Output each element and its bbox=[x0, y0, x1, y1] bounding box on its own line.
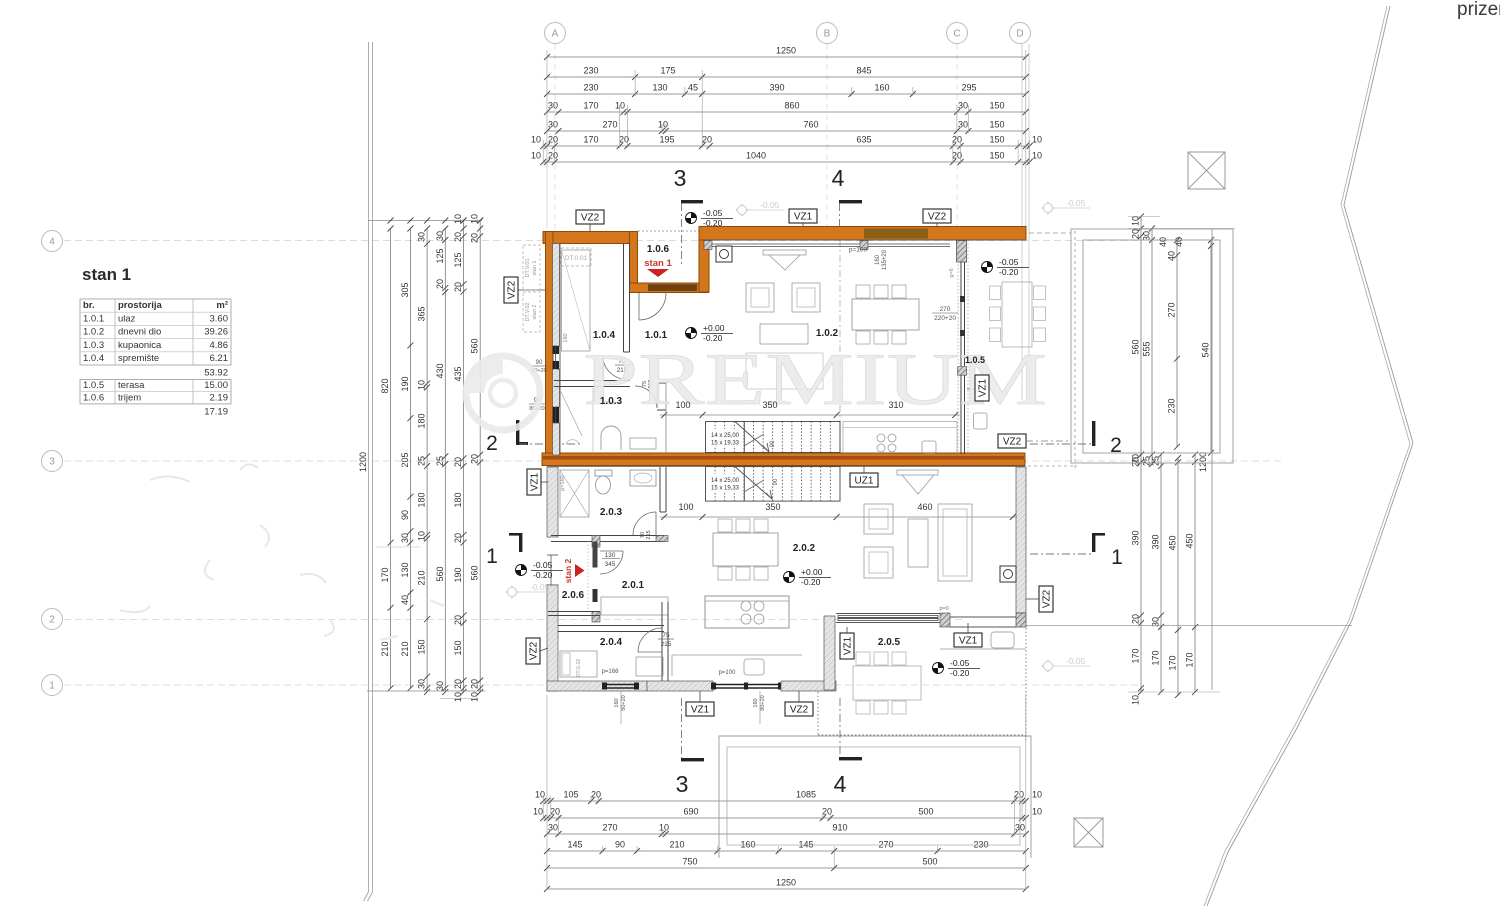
svg-text:270: 270 bbox=[602, 120, 617, 130]
svg-text:560: 560 bbox=[470, 565, 480, 580]
svg-text:150: 150 bbox=[989, 135, 1004, 145]
svg-text:30: 30 bbox=[958, 101, 968, 111]
svg-text:20: 20 bbox=[1014, 790, 1024, 800]
svg-text:450: 450 bbox=[1168, 535, 1178, 550]
svg-text:125: 125 bbox=[453, 252, 463, 267]
svg-text:130: 130 bbox=[652, 83, 667, 93]
svg-text:20: 20 bbox=[453, 615, 463, 625]
svg-text:p=160: p=160 bbox=[560, 475, 566, 490]
svg-text:20: 20 bbox=[548, 135, 558, 145]
svg-text:560: 560 bbox=[435, 566, 445, 581]
svg-text:390: 390 bbox=[1151, 534, 1161, 549]
svg-text:3: 3 bbox=[49, 457, 55, 468]
svg-text:220+20: 220+20 bbox=[934, 315, 956, 322]
svg-text:130: 130 bbox=[605, 552, 616, 559]
svg-text:190: 190 bbox=[400, 376, 410, 391]
svg-text:270: 270 bbox=[940, 306, 951, 313]
svg-text:1.0.1: 1.0.1 bbox=[645, 330, 668, 341]
svg-text:+0.00: +0.00 bbox=[703, 323, 725, 333]
svg-text:80+20: 80+20 bbox=[621, 695, 627, 710]
svg-text:500: 500 bbox=[922, 857, 937, 867]
svg-text:10: 10 bbox=[417, 380, 427, 390]
svg-text:-0.20: -0.20 bbox=[999, 267, 1019, 277]
svg-text:760: 760 bbox=[803, 120, 818, 130]
svg-text:350: 350 bbox=[762, 400, 777, 410]
svg-text:1200: 1200 bbox=[358, 452, 368, 472]
svg-text:DT.V.01: DT.V.01 bbox=[525, 258, 531, 277]
svg-text:30: 30 bbox=[1142, 231, 1152, 241]
svg-text:1.0.5: 1.0.5 bbox=[965, 355, 985, 365]
svg-text:4: 4 bbox=[49, 237, 55, 248]
svg-text:VZ1: VZ1 bbox=[691, 705, 710, 716]
svg-text:2.0.3: 2.0.3 bbox=[600, 507, 623, 518]
svg-text:4: 4 bbox=[832, 165, 845, 191]
svg-text:17.19: 17.19 bbox=[204, 406, 228, 417]
svg-text:345: 345 bbox=[605, 561, 616, 568]
svg-text:160: 160 bbox=[874, 83, 889, 93]
svg-text:VZ1: VZ1 bbox=[530, 472, 541, 491]
svg-text:20: 20 bbox=[1131, 614, 1141, 624]
svg-text:prostorija: prostorija bbox=[118, 300, 163, 311]
svg-text:30: 30 bbox=[400, 533, 410, 543]
svg-text:365: 365 bbox=[417, 306, 427, 321]
svg-text:1.0.1: 1.0.1 bbox=[83, 313, 104, 324]
svg-text:160: 160 bbox=[614, 698, 620, 707]
svg-text:305: 305 bbox=[400, 282, 410, 297]
svg-text:C: C bbox=[953, 29, 960, 40]
svg-text:2.0.2: 2.0.2 bbox=[793, 543, 816, 554]
svg-text:160: 160 bbox=[875, 254, 881, 265]
svg-text:430: 430 bbox=[435, 363, 445, 378]
svg-text:p=100: p=100 bbox=[849, 247, 868, 254]
svg-text:1.0.5: 1.0.5 bbox=[83, 380, 104, 391]
svg-text:2: 2 bbox=[1110, 434, 1122, 457]
svg-text:2.0.6: 2.0.6 bbox=[562, 590, 585, 601]
svg-text:A: A bbox=[552, 29, 559, 40]
svg-text:20: 20 bbox=[453, 457, 463, 467]
svg-text:40: 40 bbox=[1158, 237, 1168, 247]
svg-text:1040: 1040 bbox=[746, 151, 766, 161]
svg-text:10: 10 bbox=[470, 692, 480, 702]
svg-text:25: 25 bbox=[1151, 456, 1161, 466]
svg-text:170: 170 bbox=[1131, 648, 1141, 663]
svg-text:30: 30 bbox=[548, 101, 558, 111]
svg-text:20: 20 bbox=[470, 679, 480, 689]
svg-text:310: 310 bbox=[888, 400, 903, 410]
svg-text:820: 820 bbox=[380, 378, 390, 393]
svg-text:-0.20: -0.20 bbox=[801, 577, 821, 587]
svg-text:295: 295 bbox=[961, 83, 976, 93]
svg-text:spremište: spremište bbox=[118, 353, 159, 364]
svg-text:270: 270 bbox=[878, 840, 893, 850]
svg-text:-0.05: -0.05 bbox=[999, 257, 1019, 267]
svg-text:150: 150 bbox=[989, 101, 1004, 111]
svg-text:125: 125 bbox=[435, 248, 445, 263]
svg-text:560: 560 bbox=[470, 338, 480, 353]
svg-text:40: 40 bbox=[400, 595, 410, 605]
svg-text:30: 30 bbox=[435, 231, 445, 241]
svg-text:20: 20 bbox=[453, 533, 463, 543]
svg-text:2.0.4: 2.0.4 bbox=[600, 637, 623, 648]
svg-text:860: 860 bbox=[784, 101, 799, 111]
svg-text:VZ2: VZ2 bbox=[1003, 437, 1022, 448]
svg-text:m²: m² bbox=[216, 300, 228, 311]
svg-text:10: 10 bbox=[1032, 151, 1042, 161]
svg-text:-0.05: -0.05 bbox=[1066, 198, 1086, 208]
svg-text:180: 180 bbox=[453, 492, 463, 507]
svg-text:170: 170 bbox=[1185, 652, 1195, 667]
svg-text:10: 10 bbox=[531, 135, 541, 145]
svg-text:40: 40 bbox=[1174, 237, 1184, 247]
svg-text:180: 180 bbox=[417, 492, 427, 507]
svg-text:-0.20: -0.20 bbox=[533, 570, 553, 580]
svg-text:VZ2: VZ2 bbox=[790, 705, 809, 716]
svg-text:terasa: terasa bbox=[118, 380, 145, 391]
svg-text:20: 20 bbox=[453, 232, 463, 242]
svg-text:UZ1: UZ1 bbox=[855, 476, 874, 487]
svg-text:560: 560 bbox=[1131, 339, 1141, 354]
svg-text:460: 460 bbox=[917, 502, 932, 512]
svg-text:210: 210 bbox=[400, 641, 410, 656]
svg-text:4.86: 4.86 bbox=[210, 340, 229, 351]
svg-text:3: 3 bbox=[674, 165, 687, 191]
svg-text:270: 270 bbox=[1167, 302, 1177, 317]
svg-text:2.0.1: 2.0.1 bbox=[622, 580, 645, 591]
svg-text:150: 150 bbox=[417, 639, 427, 654]
svg-text:2: 2 bbox=[49, 615, 55, 626]
svg-text:175: 175 bbox=[660, 66, 675, 76]
svg-text:trijem: trijem bbox=[118, 392, 141, 403]
svg-text:20: 20 bbox=[470, 233, 480, 243]
svg-text:1085: 1085 bbox=[796, 790, 816, 800]
svg-text:205: 205 bbox=[400, 452, 410, 467]
svg-text:170: 170 bbox=[380, 567, 390, 582]
svg-text:30: 30 bbox=[417, 232, 427, 242]
svg-text:1.0.3: 1.0.3 bbox=[600, 396, 623, 407]
svg-text:p=100: p=100 bbox=[719, 670, 737, 676]
svg-text:kupaonica: kupaonica bbox=[118, 340, 162, 351]
svg-text:1.0.4: 1.0.4 bbox=[593, 330, 616, 341]
svg-text:20: 20 bbox=[702, 135, 712, 145]
svg-text:750: 750 bbox=[682, 857, 697, 867]
svg-text:VZ2: VZ2 bbox=[529, 641, 540, 660]
svg-text:3: 3 bbox=[676, 771, 689, 797]
svg-text:-0.20: -0.20 bbox=[703, 218, 723, 228]
svg-text:14 x 25,00: 14 x 25,00 bbox=[711, 478, 740, 484]
svg-text:10: 10 bbox=[658, 120, 668, 130]
svg-text:230: 230 bbox=[973, 840, 988, 850]
svg-text:150: 150 bbox=[989, 120, 1004, 130]
svg-text:90: 90 bbox=[536, 360, 543, 366]
svg-text:230: 230 bbox=[583, 83, 598, 93]
svg-text:39.26: 39.26 bbox=[204, 327, 228, 338]
svg-text:stan 2: stan 2 bbox=[563, 558, 573, 583]
svg-text:1250: 1250 bbox=[776, 878, 796, 888]
svg-text:10: 10 bbox=[1032, 135, 1042, 145]
svg-text:75: 75 bbox=[662, 632, 670, 639]
svg-text:-0.05: -0.05 bbox=[530, 582, 550, 592]
svg-text:390: 390 bbox=[1131, 530, 1141, 545]
svg-text:20: 20 bbox=[453, 679, 463, 689]
svg-text:30: 30 bbox=[548, 823, 558, 833]
svg-text:170: 170 bbox=[583, 135, 598, 145]
svg-text:210: 210 bbox=[417, 570, 427, 585]
svg-text:3.60: 3.60 bbox=[210, 313, 229, 324]
svg-text:635: 635 bbox=[856, 135, 871, 145]
svg-text:45: 45 bbox=[688, 83, 698, 93]
svg-text:p=0: p=0 bbox=[939, 606, 948, 612]
svg-text:15 x 19,33: 15 x 19,33 bbox=[711, 486, 740, 492]
svg-text:80+20: 80+20 bbox=[760, 695, 766, 710]
svg-text:VZ1: VZ1 bbox=[978, 378, 989, 397]
svg-text:g=6: g=6 bbox=[949, 268, 955, 277]
svg-text:15 x 19,33: 15 x 19,33 bbox=[711, 441, 740, 447]
svg-text:10: 10 bbox=[533, 807, 543, 817]
svg-text:10: 10 bbox=[1131, 216, 1141, 226]
svg-text:20: 20 bbox=[591, 790, 601, 800]
svg-text:2.0.5: 2.0.5 bbox=[878, 637, 901, 648]
svg-text:20: 20 bbox=[548, 151, 558, 161]
svg-text:1: 1 bbox=[49, 681, 55, 692]
svg-text:90: 90 bbox=[615, 840, 625, 850]
svg-text:DT.0.01: DT.0.01 bbox=[565, 255, 588, 262]
svg-text:20: 20 bbox=[453, 282, 463, 292]
svg-text:40: 40 bbox=[1167, 251, 1177, 261]
svg-text:-0.05: -0.05 bbox=[950, 658, 970, 668]
svg-text:210: 210 bbox=[380, 641, 390, 656]
svg-text:145: 145 bbox=[798, 840, 813, 850]
svg-text:ulaz: ulaz bbox=[118, 313, 136, 324]
svg-text:14 x 25,00: 14 x 25,00 bbox=[711, 433, 740, 439]
svg-text:30: 30 bbox=[435, 681, 445, 691]
svg-text:190: 190 bbox=[453, 567, 463, 582]
svg-text:10: 10 bbox=[659, 823, 669, 833]
svg-text:10: 10 bbox=[1032, 807, 1042, 817]
svg-text:30: 30 bbox=[417, 679, 427, 689]
svg-text:stan 1: stan 1 bbox=[82, 265, 131, 284]
svg-text:20: 20 bbox=[435, 279, 445, 289]
svg-text:-0.05: -0.05 bbox=[760, 200, 780, 210]
svg-text:D: D bbox=[1016, 29, 1023, 40]
svg-text:1.0.2: 1.0.2 bbox=[83, 327, 104, 338]
svg-text:1.0.3: 1.0.3 bbox=[83, 340, 104, 351]
svg-text:stan 1: stan 1 bbox=[532, 261, 538, 276]
svg-text:160: 160 bbox=[563, 333, 569, 342]
svg-text:p=166: p=166 bbox=[602, 669, 620, 675]
svg-text:stan 1: stan 1 bbox=[644, 258, 672, 269]
svg-text:15.00: 15.00 bbox=[204, 380, 228, 391]
svg-text:DT.V.02: DT.V.02 bbox=[525, 302, 531, 321]
svg-text:1.0.6: 1.0.6 bbox=[83, 392, 104, 403]
svg-text:1.0.4: 1.0.4 bbox=[83, 353, 104, 364]
svg-text:130: 130 bbox=[400, 562, 410, 577]
svg-text:-0.20: -0.20 bbox=[950, 668, 970, 678]
svg-text:845: 845 bbox=[856, 66, 871, 76]
svg-text:1: 1 bbox=[486, 545, 498, 568]
svg-text:VZ2: VZ2 bbox=[507, 280, 518, 299]
svg-text:-0.05: -0.05 bbox=[703, 208, 723, 218]
svg-text:1: 1 bbox=[1111, 546, 1123, 569]
svg-text:6.21: 6.21 bbox=[210, 353, 229, 364]
svg-text:690: 690 bbox=[683, 807, 698, 817]
svg-text:VZ2: VZ2 bbox=[1042, 589, 1053, 608]
svg-text:135+20: 135+20 bbox=[882, 249, 888, 270]
svg-text:+0.00: +0.00 bbox=[801, 567, 823, 577]
svg-text:350: 350 bbox=[765, 502, 780, 512]
svg-text:-0.20: -0.20 bbox=[703, 333, 723, 343]
svg-text:450: 450 bbox=[1185, 533, 1195, 548]
svg-text:53.92: 53.92 bbox=[204, 368, 228, 379]
svg-text:170: 170 bbox=[1168, 655, 1178, 670]
svg-text:10: 10 bbox=[535, 790, 545, 800]
svg-text:910: 910 bbox=[832, 823, 847, 833]
svg-text:VZ2: VZ2 bbox=[581, 213, 600, 224]
svg-text:1250: 1250 bbox=[776, 46, 796, 56]
svg-text:160: 160 bbox=[740, 840, 755, 850]
svg-text:1.0.6: 1.0.6 bbox=[647, 244, 670, 255]
svg-text:1.0.2: 1.0.2 bbox=[816, 328, 839, 339]
svg-text:20: 20 bbox=[1131, 457, 1141, 467]
svg-text:prizemlje: prizemlje bbox=[1457, 0, 1500, 20]
svg-text:20: 20 bbox=[470, 454, 480, 464]
svg-text:-0.05: -0.05 bbox=[1066, 656, 1086, 666]
svg-text:390: 390 bbox=[769, 83, 784, 93]
svg-text:160: 160 bbox=[753, 698, 759, 707]
svg-text:2.19: 2.19 bbox=[210, 392, 229, 403]
svg-text:dnevni dio: dnevni dio bbox=[118, 327, 161, 338]
svg-text:555: 555 bbox=[1142, 341, 1152, 356]
svg-text:VZ2: VZ2 bbox=[928, 212, 947, 223]
svg-text:230: 230 bbox=[583, 66, 598, 76]
svg-text:150: 150 bbox=[989, 151, 1004, 161]
svg-text:215: 215 bbox=[646, 530, 652, 539]
svg-text:VZ1: VZ1 bbox=[794, 212, 813, 223]
svg-text:435: 435 bbox=[453, 366, 463, 381]
svg-text:270: 270 bbox=[602, 823, 617, 833]
svg-text:90: 90 bbox=[773, 478, 779, 485]
svg-text:10: 10 bbox=[1032, 790, 1042, 800]
svg-text:30: 30 bbox=[958, 120, 968, 130]
svg-text:4: 4 bbox=[834, 771, 847, 797]
svg-text:25: 25 bbox=[435, 456, 445, 466]
svg-text:10: 10 bbox=[1131, 695, 1141, 705]
svg-text:2: 2 bbox=[486, 432, 498, 455]
svg-text:VZ1: VZ1 bbox=[843, 636, 854, 655]
svg-text:-0.05: -0.05 bbox=[533, 560, 553, 570]
svg-text:210: 210 bbox=[669, 840, 684, 850]
svg-text:100: 100 bbox=[675, 400, 690, 410]
svg-text:10: 10 bbox=[531, 151, 541, 161]
svg-text:B: B bbox=[824, 29, 831, 40]
svg-text:170: 170 bbox=[583, 101, 598, 111]
svg-text:180: 180 bbox=[417, 413, 427, 428]
svg-text:VZ1: VZ1 bbox=[959, 636, 978, 647]
svg-text:215: 215 bbox=[661, 641, 672, 648]
svg-text:br.: br. bbox=[83, 300, 95, 311]
svg-text:10: 10 bbox=[453, 692, 463, 702]
svg-text:30: 30 bbox=[548, 120, 558, 130]
svg-text:DT.G.02: DT.G.02 bbox=[576, 659, 582, 678]
svg-text:500: 500 bbox=[918, 807, 933, 817]
svg-text:145: 145 bbox=[567, 840, 582, 850]
svg-text:100: 100 bbox=[678, 502, 693, 512]
svg-text:10: 10 bbox=[417, 531, 427, 541]
svg-text:1200: 1200 bbox=[1198, 452, 1208, 472]
svg-text:stan 2: stan 2 bbox=[532, 305, 538, 320]
svg-text:540: 540 bbox=[1201, 342, 1211, 357]
svg-text:150: 150 bbox=[453, 640, 463, 655]
svg-text:90: 90 bbox=[400, 510, 410, 520]
svg-text:20: 20 bbox=[1131, 229, 1141, 239]
svg-text:170: 170 bbox=[1151, 650, 1161, 665]
svg-text:230: 230 bbox=[1167, 398, 1177, 413]
svg-text:195: 195 bbox=[659, 135, 674, 145]
svg-text:90: 90 bbox=[770, 440, 776, 447]
svg-text:105: 105 bbox=[563, 790, 578, 800]
svg-text:25: 25 bbox=[417, 456, 427, 466]
